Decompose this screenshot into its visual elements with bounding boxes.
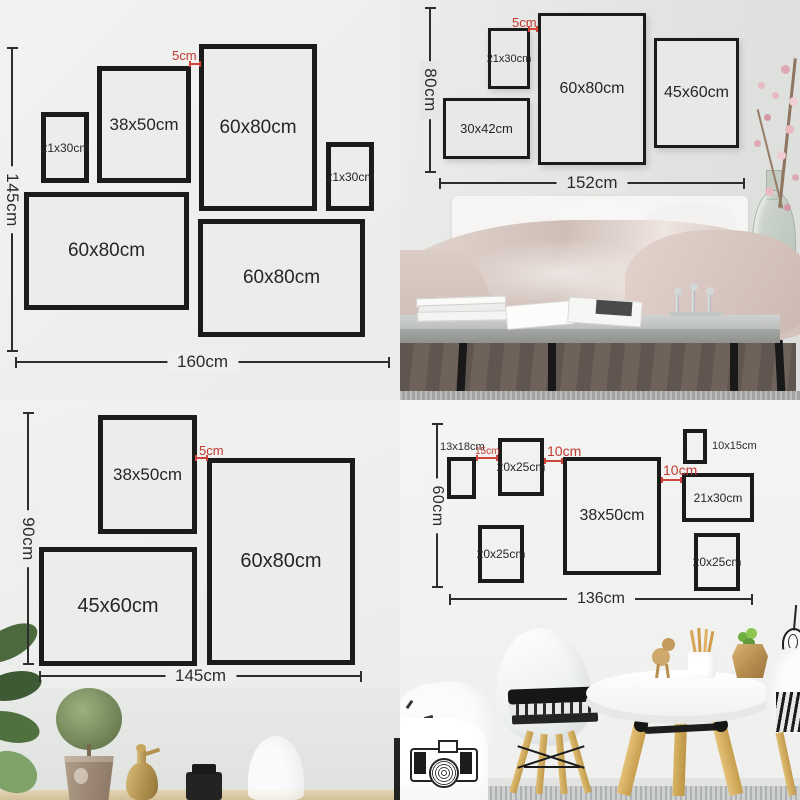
frame-size-label: 21x30cm xyxy=(487,53,532,65)
height-ruler: 90cm xyxy=(22,412,34,665)
frame-size-label: 45x60cm xyxy=(664,84,729,102)
frame-45x60: 45x60cm xyxy=(654,38,739,148)
width-ruler: 136cm xyxy=(449,593,753,605)
frame-60x80: 60x80cm xyxy=(207,458,355,665)
panel-bottom-left: 90cm 145cm 38x50cm 60x80cm 45x60cm 5cm xyxy=(0,400,400,800)
gap-arrow xyxy=(476,457,498,459)
frame-size-label: 30x42cm xyxy=(460,121,513,136)
frame-20x25: 20x25cm xyxy=(498,438,544,496)
ruler-cap xyxy=(425,171,436,173)
frame-size-label: 10x15cm xyxy=(712,440,757,452)
frame-size-label: 60x80cm xyxy=(243,267,320,289)
ruler-cap xyxy=(39,671,41,682)
ruler-cap xyxy=(743,178,745,189)
height-label: 80cm xyxy=(420,61,440,119)
panel-top-right: 80cm 152cm 21x30cm 60x80cm 45x60cm 30x42… xyxy=(400,0,800,400)
ruler-cap xyxy=(425,7,436,9)
frame-size-label: 60x80cm xyxy=(68,240,145,262)
candleholder-ball xyxy=(706,287,714,295)
ruler-cap xyxy=(7,47,18,49)
frame-size-label: 20x25cm xyxy=(693,555,742,569)
frame-38x50: 38x50cm xyxy=(98,415,197,534)
gap-arrow xyxy=(661,479,682,481)
frame-21x30: 21x30cm xyxy=(326,142,374,211)
ruler-cap xyxy=(388,357,390,368)
ruler-cap xyxy=(7,350,18,352)
bench-leg xyxy=(730,342,738,392)
ruler-cap xyxy=(23,663,34,665)
camera-grip xyxy=(460,752,472,774)
book xyxy=(417,310,507,322)
brass-mister-pump xyxy=(136,744,146,752)
black-jar-lid xyxy=(192,764,216,774)
frame-60x80: 60x80cm xyxy=(198,219,365,337)
frame-60x80: 60x80cm xyxy=(24,192,189,310)
candleholder-ball xyxy=(674,287,682,295)
frame-size-label: 60x80cm xyxy=(560,80,625,98)
striped-textile xyxy=(776,692,800,732)
bench-edge xyxy=(400,329,780,343)
frame-size-label: 21x30cm xyxy=(41,141,90,155)
width-ruler: 145cm xyxy=(39,670,362,682)
frame-38x50: 38x50cm xyxy=(563,457,661,575)
frame-20x25: 20x25cm xyxy=(478,525,524,583)
frame-size-label: 45x60cm xyxy=(77,595,158,618)
frame-size-label: 60x80cm xyxy=(240,550,321,573)
camera-viewfinder xyxy=(438,740,458,753)
frame-60x80: 60x80cm xyxy=(199,44,317,211)
frame-size-label: 38x50cm xyxy=(580,507,645,525)
width-label: 145cm xyxy=(165,666,236,686)
frame-size-label: 21x30cm xyxy=(694,491,743,505)
width-ruler: 160cm xyxy=(15,356,390,368)
frame-10x15 xyxy=(683,429,707,464)
frame-21x30: 21x30cm xyxy=(41,112,89,183)
frame-21x30: 21x30cm xyxy=(488,28,530,89)
ruler-cap xyxy=(15,357,17,368)
frame-13x18 xyxy=(447,457,476,499)
height-label: 145cm xyxy=(2,166,22,234)
gap-annotation: 5cm xyxy=(199,443,224,458)
pencil-cup xyxy=(688,652,716,678)
frame-45x60: 45x60cm xyxy=(39,547,197,666)
gap-annotation: 5cm xyxy=(172,48,197,63)
wooden-toy-head xyxy=(662,638,675,651)
ruler-cap xyxy=(751,594,753,605)
gallery-wall-layout-collage: 145cm 160cm 21x30cm 38x50cm 60x80cm 21x3… xyxy=(0,0,800,800)
branch xyxy=(778,58,796,207)
candleholder-base xyxy=(670,312,722,316)
brass-mister-body xyxy=(126,762,158,800)
ruler-cap xyxy=(449,594,451,605)
camera-grip xyxy=(414,752,426,774)
clay-pot xyxy=(62,756,116,800)
frame-size-label: 20x25cm xyxy=(477,547,526,561)
gap-arrow xyxy=(189,63,201,65)
gap-arrow xyxy=(528,28,538,30)
pot-patina xyxy=(74,768,88,784)
height-label: 60cm xyxy=(428,478,446,533)
black-jar xyxy=(186,772,222,800)
frame-size-label: 38x50cm xyxy=(113,465,182,485)
gap-arrow xyxy=(195,457,208,459)
ruler-cap xyxy=(432,586,443,588)
width-ruler: 152cm xyxy=(439,177,745,189)
frame-38x50: 38x50cm xyxy=(97,66,191,183)
ruler-cap xyxy=(360,671,362,682)
frame-size-label: 21x30cm xyxy=(326,170,375,184)
width-label: 160cm xyxy=(167,352,238,372)
bench-leg xyxy=(548,342,556,392)
geometric-pot xyxy=(732,644,768,678)
carpet xyxy=(400,391,800,400)
ruler-cap xyxy=(23,412,34,414)
panel-bottom-right: 60cm 136cm 13x18cm 20x25cm 38x50cm 10x15… xyxy=(400,400,800,800)
frame-20x25: 20x25cm xyxy=(694,533,740,591)
frame-60x80: 60x80cm xyxy=(538,13,646,165)
height-ruler: 145cm xyxy=(6,47,18,352)
height-ruler: 80cm xyxy=(424,7,436,173)
frame-21x30: 21x30cm xyxy=(682,473,754,522)
frame-size-label: 20x25cm xyxy=(497,460,546,474)
frame-30x42: 30x42cm xyxy=(443,98,530,159)
camera-lens xyxy=(429,758,459,788)
gap-arrow xyxy=(544,460,563,462)
width-label: 136cm xyxy=(567,590,635,608)
topiary-ball xyxy=(56,688,122,750)
blossoms xyxy=(772,92,779,99)
ruler-cap xyxy=(432,423,443,425)
gap-annotation: 10cm xyxy=(547,443,581,459)
height-label: 90cm xyxy=(18,510,38,568)
gap-annotation: 10cm xyxy=(663,462,697,478)
width-label: 152cm xyxy=(556,173,627,193)
ruler-cap xyxy=(439,178,441,189)
candleholder-ball xyxy=(690,283,698,291)
frame-size-label: 60x80cm xyxy=(219,117,296,139)
leg-strut xyxy=(524,766,580,768)
panel-top-left: 145cm 160cm 21x30cm 38x50cm 60x80cm 21x3… xyxy=(0,0,400,400)
frame-size-label: 38x50cm xyxy=(110,115,179,135)
book-photo xyxy=(596,300,633,316)
